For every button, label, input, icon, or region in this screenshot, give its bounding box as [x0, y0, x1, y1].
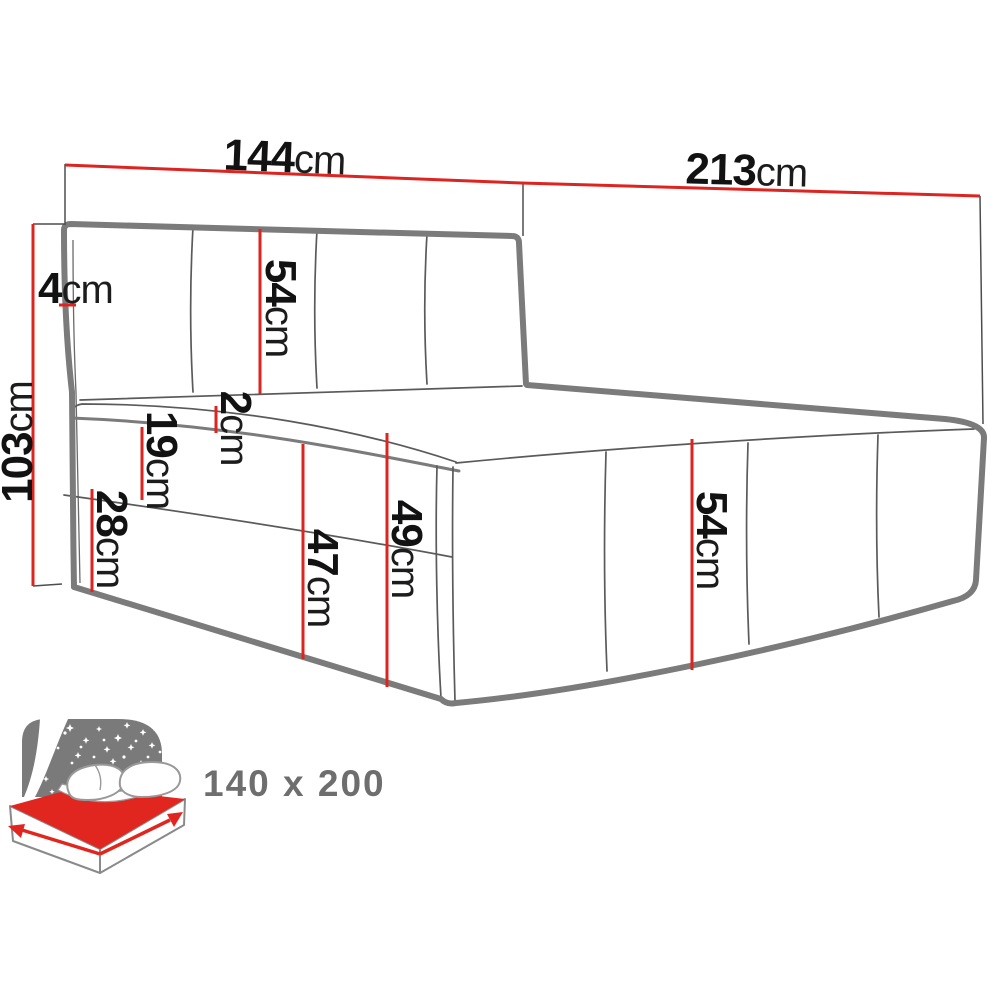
dim-label-width: 144cm [223, 131, 347, 185]
bed-drawing [64, 224, 984, 704]
bed-size-icon: 140 x 200 [8, 719, 386, 873]
dim-label-side-panel: 54cm [687, 491, 736, 589]
side-panel-seam [605, 452, 607, 671]
dim-label-headboard-side: 4cm [38, 264, 113, 313]
dim-label-mattress-top: 2cm [211, 391, 260, 466]
dim-label-base-upper: 19cm [137, 411, 186, 509]
dim-label-front-total: 49cm [382, 500, 431, 598]
bed-dimension-diagram: 144cm 213cm 103cm 4cm 54cm 2cm 19cm 28cm… [0, 0, 1000, 1000]
side-panel-seam [877, 435, 879, 617]
side-panel-seam [747, 443, 749, 644]
side-rail-top-edge [456, 429, 974, 463]
dim-label-base-lower: 28cm [87, 490, 136, 588]
dim-label-front-lower: 47cm [298, 529, 347, 627]
diagram-canvas: 144cm 213cm 103cm 4cm 54cm 2cm 19cm 28cm… [0, 0, 1000, 1000]
base-corner-edge [436, 466, 441, 698]
extension-line [980, 196, 983, 424]
base-corner-edge [453, 467, 455, 701]
dim-label-height: 103cm [0, 381, 42, 503]
size-label: 140 x 200 [203, 763, 386, 804]
icon-pillow [120, 762, 180, 797]
dim-label-length: 213cm [685, 144, 808, 196]
extension-line [33, 584, 62, 586]
mattress-top-edge [72, 404, 456, 462]
base-outline [74, 385, 984, 704]
dim-label-headboard-panel: 54cm [256, 259, 305, 357]
